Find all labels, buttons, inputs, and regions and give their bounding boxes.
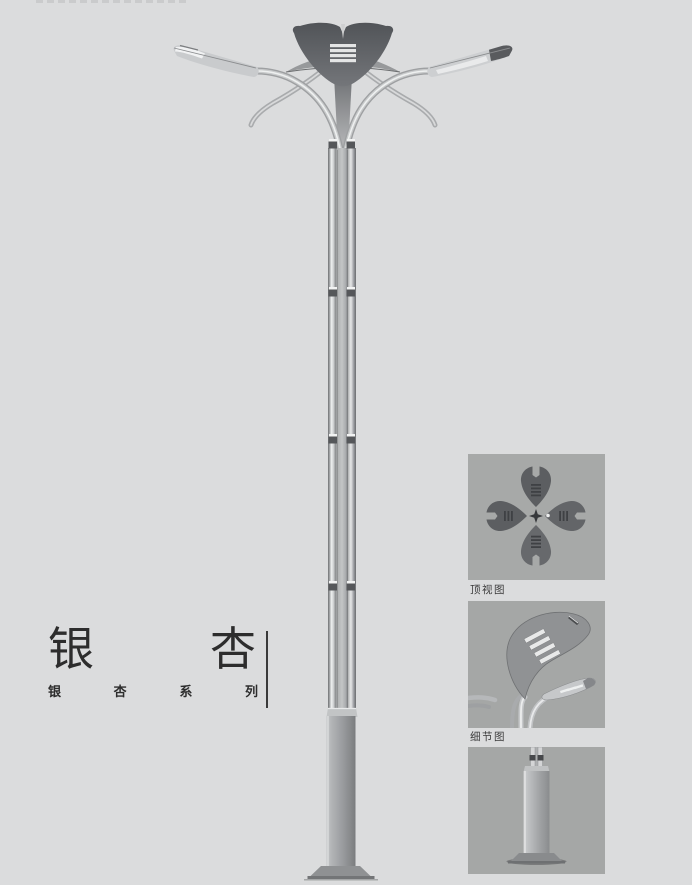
base-render	[468, 747, 605, 874]
catalog-page: { "page": { "background_color": "#dbdcdd…	[0, 0, 692, 885]
brand-block: 银 杏 银 杏 系 列	[48, 624, 272, 700]
title-char-1: 银	[48, 624, 94, 675]
right-arm	[345, 71, 429, 154]
base-plate	[310, 866, 371, 877]
thumbnail-base-view	[468, 747, 605, 874]
left-lamp-head	[174, 45, 259, 77]
thumbnail-top-view	[468, 454, 605, 580]
title-char-2: 杏	[210, 624, 256, 675]
detail-blade	[542, 678, 596, 700]
top-view-render	[468, 454, 605, 580]
left-arm	[257, 71, 341, 154]
detail-view-label: 细节图	[470, 729, 506, 744]
detail-render	[468, 601, 605, 728]
right-lamp-head	[427, 45, 512, 77]
series-subtitle: 银 杏 系 列	[48, 681, 258, 700]
title-divider	[266, 631, 268, 708]
ginkgo-crown	[293, 23, 393, 87]
center-finial	[529, 509, 543, 523]
series-title: 银 杏	[48, 624, 256, 675]
base-column	[304, 708, 378, 881]
ginkgo-cross	[487, 467, 586, 566]
thumbnail-detail-view	[468, 601, 605, 728]
pole	[328, 139, 356, 714]
top-view-label: 顶视图	[470, 582, 506, 597]
